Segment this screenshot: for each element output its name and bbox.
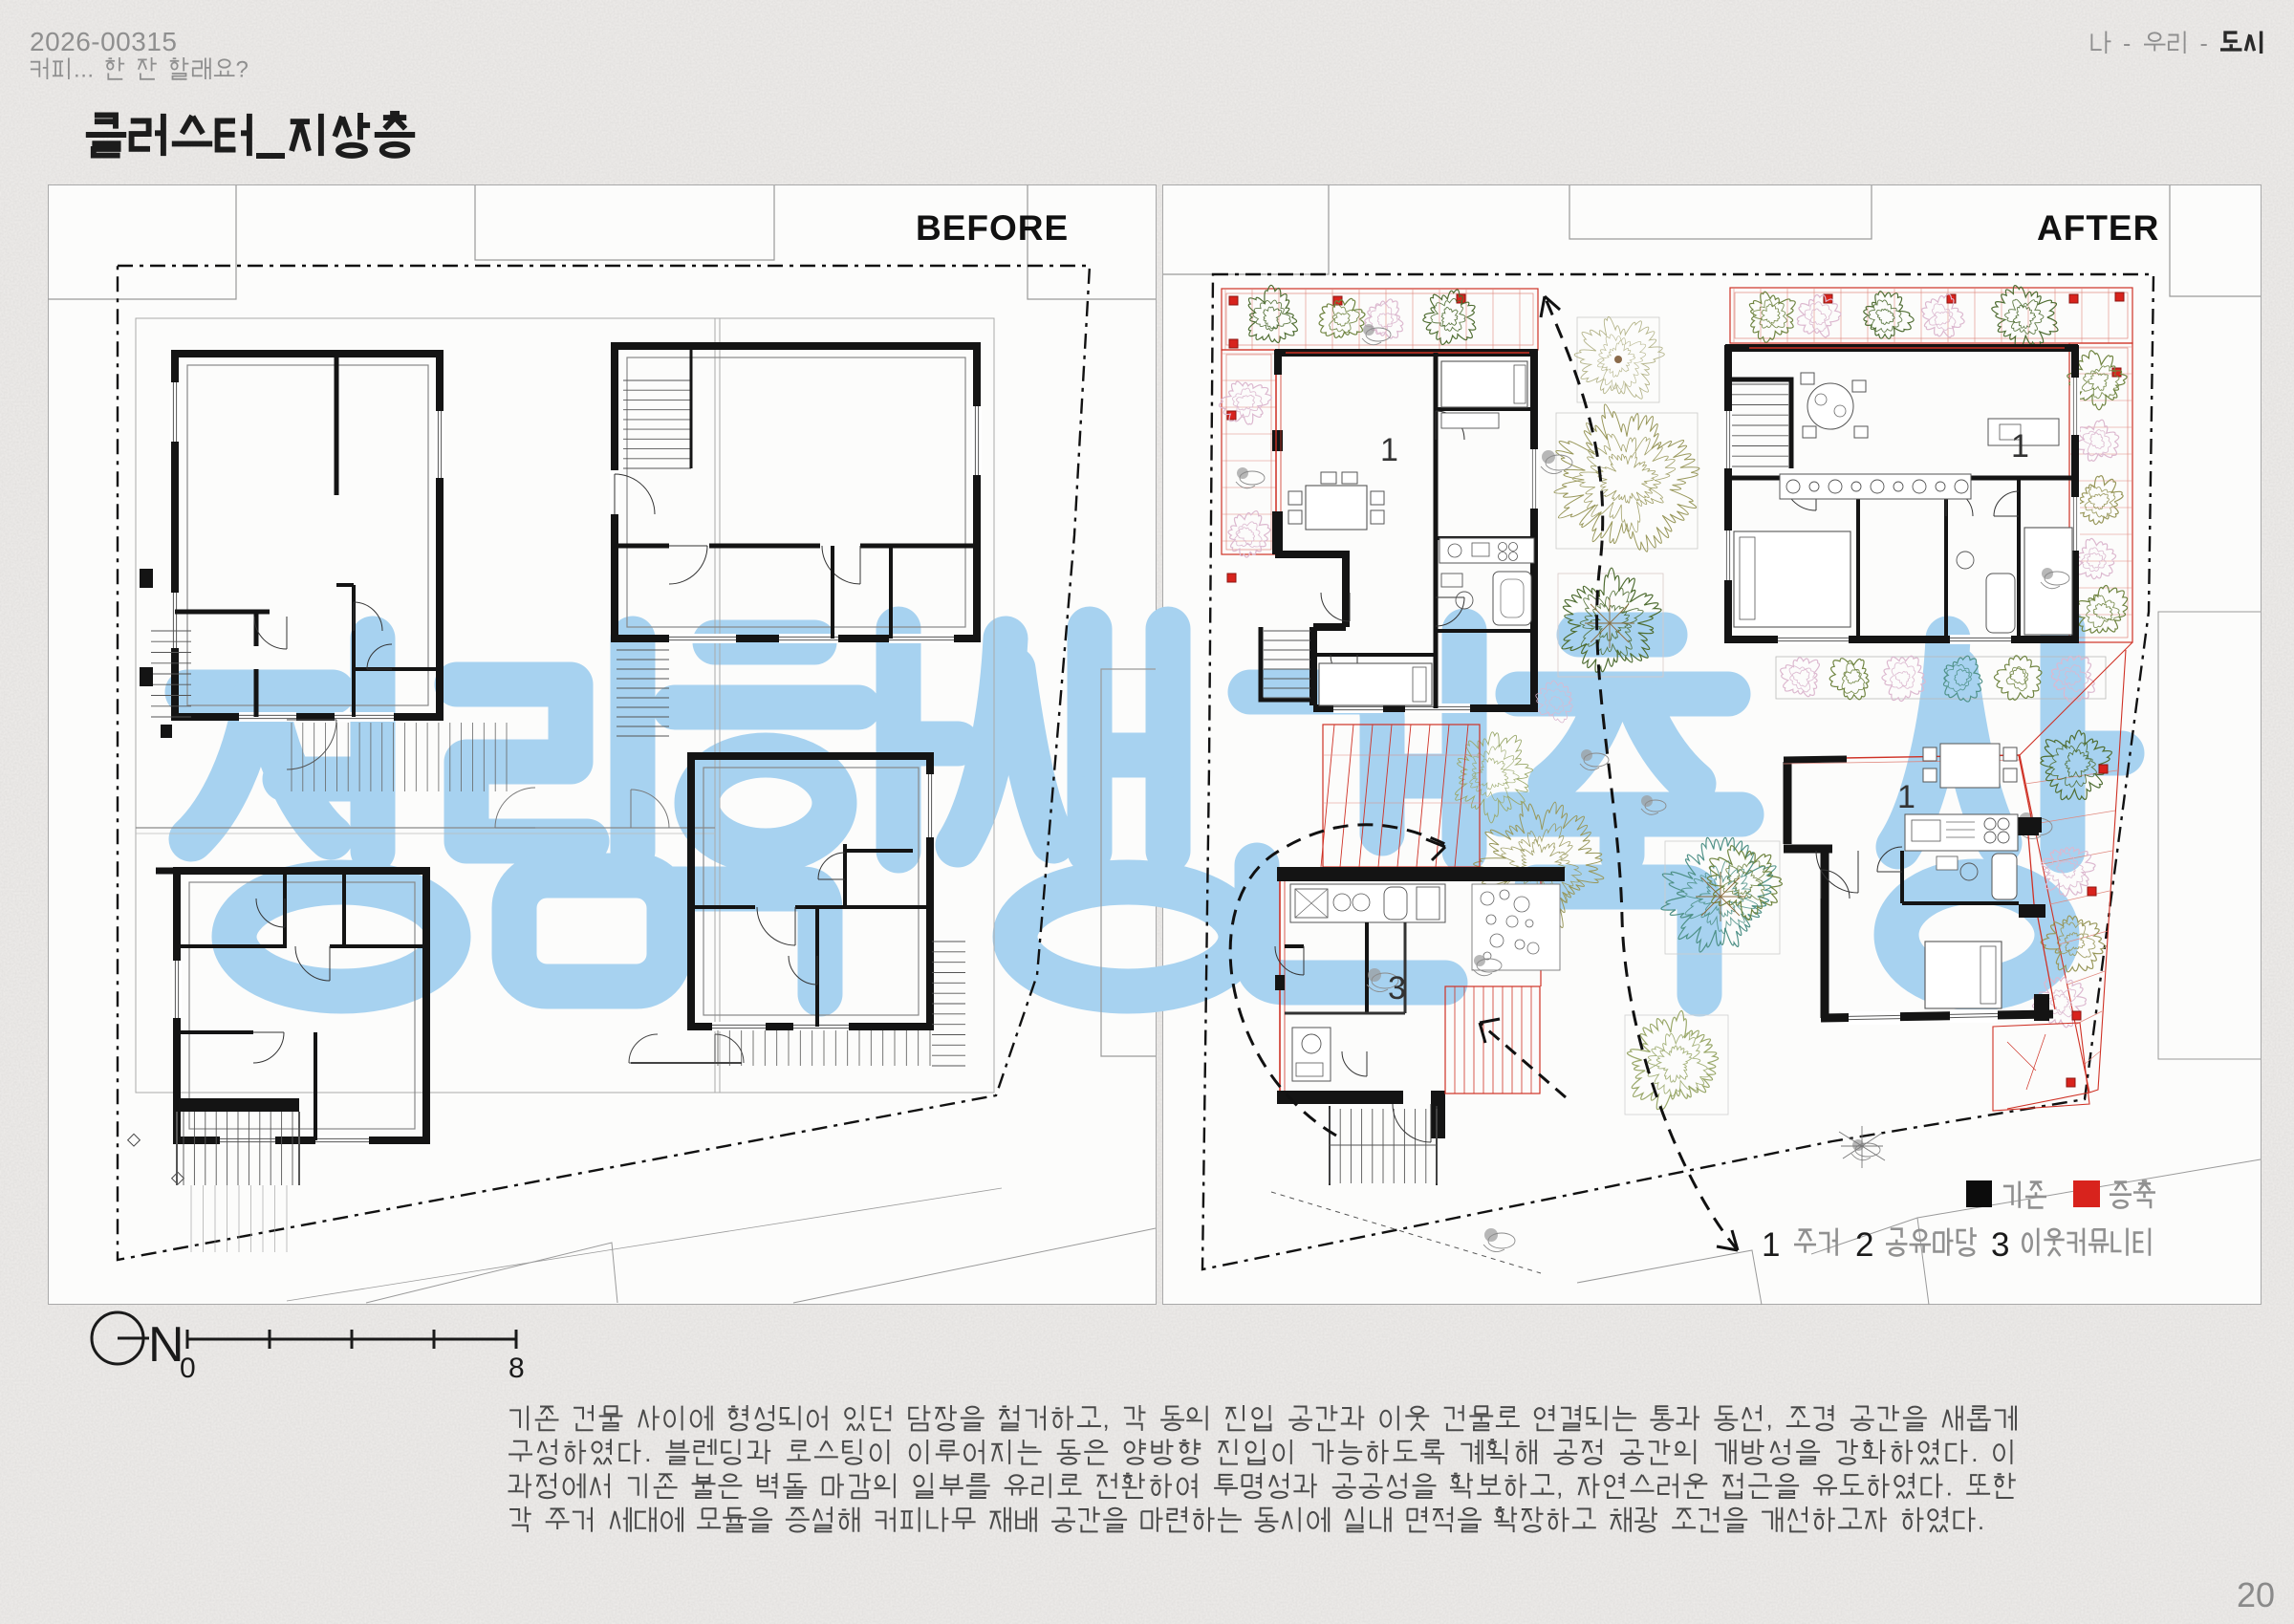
svg-text:.: .	[87, 57, 94, 83]
svg-text:8: 8	[509, 1353, 525, 1384]
svg-text:0: 0	[180, 1353, 196, 1384]
svg-text:.: .	[80, 57, 87, 83]
svg-text:?: ?	[236, 57, 249, 83]
svg-text:N: N	[148, 1317, 184, 1373]
svg-text:,: ,	[1766, 1405, 1773, 1434]
svg-text:.: .	[74, 57, 80, 83]
svg-text:1: 1	[2011, 428, 2029, 465]
svg-text:1: 1	[1762, 1226, 1780, 1264]
svg-text:,: ,	[1103, 1405, 1110, 1434]
svg-text:1: 1	[1380, 432, 1398, 468]
svg-text:1: 1	[1897, 779, 1915, 815]
svg-text:2: 2	[1855, 1226, 1873, 1264]
svg-text:.: .	[1971, 1439, 1978, 1467]
svg-text:.: .	[1946, 1473, 1953, 1502]
svg-text:3: 3	[1991, 1226, 2009, 1264]
svg-text:3: 3	[1388, 970, 1406, 1007]
svg-text:.: .	[1978, 1506, 1984, 1535]
svg-text:-: -	[2123, 31, 2131, 57]
svg-text:,: ,	[1556, 1473, 1563, 1502]
svg-text:.: .	[644, 1439, 651, 1467]
svg-text:-: -	[2200, 31, 2208, 57]
